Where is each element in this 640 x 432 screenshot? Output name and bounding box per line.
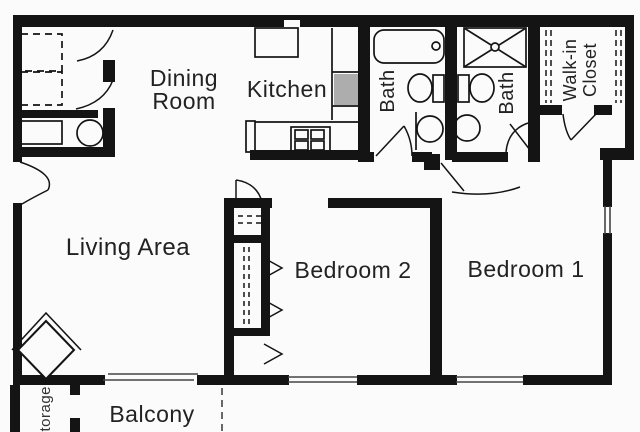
wall-bottom-4: [523, 375, 612, 385]
door-swing-icon-walkin-closet: [563, 114, 596, 140]
wall-hall-a: [358, 152, 374, 162]
door-swing-icon-laundry-lower: [76, 80, 113, 109]
door-swing-icon-laundry-upper: [77, 30, 113, 61]
utility-sink-icon: [20, 121, 62, 144]
window-icon-bedroom2: [288, 377, 357, 382]
sink-icon: [417, 116, 443, 142]
wall-closetcol-right: [261, 198, 270, 335]
door-swing-icon-bath-left: [376, 126, 412, 156]
tub-faucet: [432, 42, 440, 50]
wall-right-upper: [625, 15, 634, 155]
bathtub-icon: [374, 30, 444, 63]
counter-end-panel: [246, 121, 255, 152]
balcony-label: Balcony: [102, 403, 202, 426]
wall-storage-stub-a: [70, 383, 80, 395]
toilet-icon: [458, 74, 494, 102]
storage-label: Storage: [38, 378, 54, 432]
fireplace-icon: [12, 313, 81, 379]
washer-dryer-icon: [21, 34, 62, 71]
floor-plan: Dining Room Kitchen Bath Bath Walk-in Cl…: [0, 0, 640, 432]
door-swing-icon-entry: [20, 162, 49, 204]
walkin-closet-label-line2: Closet: [580, 28, 600, 112]
kitchen-label: Kitchen: [237, 78, 337, 101]
kitchen-sink-icon: [334, 74, 358, 105]
wall-closetcol-bot: [224, 328, 270, 336]
wall-bedroom-divider: [430, 198, 442, 385]
wall-top: [13, 15, 634, 27]
wall-kitchen-bath: [358, 27, 370, 160]
wall-closetcol-left: [224, 198, 234, 375]
door-swing-icon-bifold: [264, 344, 282, 364]
wall-hall-jamb: [424, 154, 440, 170]
wall-right-a: [603, 158, 612, 207]
living-area-label: Living Area: [43, 236, 213, 260]
wall-balcony-left: [10, 385, 20, 432]
shower-icon: [464, 28, 526, 67]
refrigerator-icon: [255, 28, 298, 57]
window-icon-bedroom1-side: [605, 206, 610, 234]
utility-fixtures: [20, 34, 103, 146]
dining-room-label-line2: Room: [128, 90, 240, 113]
water-heater-icon: [77, 120, 103, 146]
wall-right-b: [603, 233, 612, 385]
sink-icon: [454, 115, 480, 141]
door-swing-icon-bath-right: [506, 123, 530, 152]
bath-left-label: Bath: [378, 61, 400, 121]
wall-storage-stub-b: [70, 418, 80, 432]
door-swing-icon-bedroom1: [441, 163, 520, 194]
wall-utility-half: [13, 110, 98, 118]
wall-bath2-right: [528, 27, 540, 162]
floor-plan-drawing: [0, 0, 640, 432]
bedroom1-label: Bedroom 1: [456, 258, 596, 281]
sliding-glass-door-icon: [103, 374, 198, 380]
wall-bottom-1: [13, 375, 105, 385]
wall-notch: [284, 20, 300, 27]
wall-left-mid: [13, 203, 22, 385]
wall-bottom-2: [197, 375, 289, 385]
wall-closetcol-div: [224, 235, 270, 243]
wall-hall-c: [452, 152, 508, 162]
bedroom2-label: Bedroom 2: [283, 259, 423, 282]
wall-utility-right-a: [103, 60, 115, 82]
wall-bed2-top-b: [328, 198, 442, 208]
wall-utility-bottom: [13, 147, 115, 157]
washer-dryer-icon: [21, 72, 62, 105]
window-icon-bedroom1: [456, 377, 523, 382]
wall-closet-bottom-a: [540, 105, 562, 115]
range-icon: [291, 127, 330, 152]
walkin-closet-label: Walk-in Closet: [560, 28, 602, 112]
toilet-icon: [408, 74, 444, 102]
wall-bath-divider: [445, 27, 457, 160]
bath-right-label: Bath: [497, 63, 519, 123]
walkin-closet-label-line1: Walk-in: [560, 28, 580, 112]
dining-room-label-line1: Dining: [128, 67, 240, 90]
